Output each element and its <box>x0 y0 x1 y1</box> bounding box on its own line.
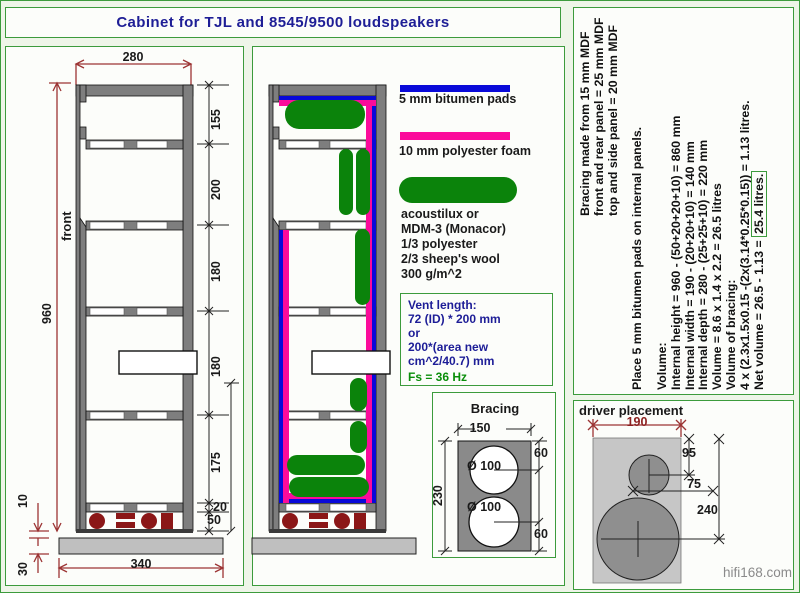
left-red-dimension-lines <box>29 60 223 578</box>
bracing-dim-230: 230 <box>432 485 445 506</box>
vent-length-box: Vent length: 72 (ID) * 200 mm or 200*(ar… <box>400 293 553 386</box>
vent-line: 72 (ID) * 200 mm <box>408 312 552 326</box>
volume-line: Volume of bracing: <box>725 22 739 390</box>
fs-frequency-line: Fs = 36 Hz <box>408 370 552 384</box>
dim-label-155: 155 <box>210 109 223 130</box>
front-label: front <box>60 211 73 241</box>
middle-bottom-panel <box>269 529 386 533</box>
middle-feet <box>282 513 366 529</box>
bracing-dim-60-top: 60 <box>534 447 548 460</box>
construction-note-line: Bracing made from 15 mm MDF <box>578 11 592 216</box>
middle-cabinet-drawing <box>252 85 416 554</box>
acoustilux-legend-label: acoustilux or MDM-3 (Monacor) 1/3 polyes… <box>401 207 506 282</box>
vent-line: Vent length: <box>408 298 552 312</box>
foam-legend-label: 10 mm polyester foam <box>399 145 531 158</box>
bracing-hole1-label: Ø 100 <box>467 460 501 473</box>
dim-label-200: 200 <box>210 179 223 200</box>
volume-line: Volume = 8.6 x 1.4 x 2.2 = 26.5 litres <box>711 22 725 390</box>
left-vent-tube <box>119 351 197 374</box>
left-cabinet-drawing <box>29 60 239 578</box>
driver-dim-95: 95 <box>682 447 696 460</box>
cabinet-plan-page: Cabinet for TJL and 8545/9500 loudspeake… <box>0 0 800 593</box>
driver-dim-190: 190 <box>599 416 675 429</box>
vent-line: 200*(area new <box>408 340 552 354</box>
dim-label-width-280: 280 <box>110 51 156 64</box>
dim-label-175: 175 <box>210 452 223 473</box>
acoustilux-line: 300 g/m^2 <box>401 267 506 282</box>
acoustilux-line: 2/3 sheep's wool <box>401 252 506 267</box>
watermark-text: hifi168.com <box>723 565 792 580</box>
bracing-title: Bracing <box>456 402 534 415</box>
bitumen-legend-label: 5 mm bitumen pads <box>399 93 516 106</box>
bracing-hole2-label: Ø 100 <box>467 501 501 514</box>
left-feet <box>89 513 173 529</box>
middle-plinth <box>252 538 416 554</box>
construction-notes-block: Bracing made from 15 mm MDF front and re… <box>578 11 621 216</box>
volume-notes-block: Volume: Internal height = 960 - (50+20+2… <box>656 22 766 390</box>
acoustilux-swatch <box>399 177 517 203</box>
volume-line: Internal height = 960 - (50+20+20+10) = … <box>670 22 684 390</box>
volume-line: Volume: <box>656 22 670 390</box>
acoustilux-line: acoustilux or <box>401 207 506 222</box>
foam-swatch <box>400 132 510 140</box>
acoustilux-line: 1/3 polyester <box>401 237 506 252</box>
dim-label-height-960: 960 <box>41 303 54 324</box>
bitumen-note-block: Place 5 mm bitumen pads on internal pane… <box>630 22 644 390</box>
driver-placement-drawing <box>588 419 725 583</box>
left-shelf-holes <box>90 141 167 511</box>
middle-vent-tube <box>312 351 390 374</box>
left-plinth <box>59 538 223 554</box>
dim-label-10: 10 <box>17 494 30 508</box>
driver-dim-240: 240 <box>697 504 718 517</box>
volume-line: Internal depth = 280 - (25+25+10) = 220 … <box>697 22 711 390</box>
page-title: Cabinet for TJL and 8545/9500 loudspeake… <box>5 7 561 38</box>
bracing-dim-60-bottom: 60 <box>534 528 548 541</box>
volume-line: Internal width = 190 - (20+20+10) = 140 … <box>684 22 698 390</box>
driver-dim-75: 75 <box>687 478 701 491</box>
dim-label-180-lower: 180 <box>210 356 223 377</box>
bracing-dim-150: 150 <box>462 422 498 435</box>
net-volume-line: Net volume = 26.5 - 1.13 = 25.4 litres. <box>753 22 767 390</box>
net-volume-prefix: Net volume = 26.5 - 1.13 = <box>752 237 766 390</box>
vent-line: cm^2/40.7) mm <box>408 354 552 368</box>
bitumen-note-line: Place 5 mm bitumen pads on internal pane… <box>630 22 644 390</box>
vent-line: or <box>408 326 552 340</box>
bitumen-swatch <box>400 85 510 92</box>
left-bottom-panel <box>76 529 193 533</box>
construction-note-line: top and side panel = 20 mm MDF <box>606 11 620 216</box>
dim-label-50: 50 <box>207 514 221 527</box>
construction-note-line: front and rear panel = 25 mm MDF <box>592 11 606 216</box>
acoustilux-line: MDM-3 (Monacor) <box>401 222 506 237</box>
dim-label-30: 30 <box>17 562 30 576</box>
dim-label-180-upper: 180 <box>210 261 223 282</box>
bracing-drawing <box>438 423 547 555</box>
dim-label-340: 340 <box>119 558 163 571</box>
acoustilux-wads <box>285 100 370 497</box>
net-volume-boxed-value: 25.4 litres. <box>751 171 767 237</box>
